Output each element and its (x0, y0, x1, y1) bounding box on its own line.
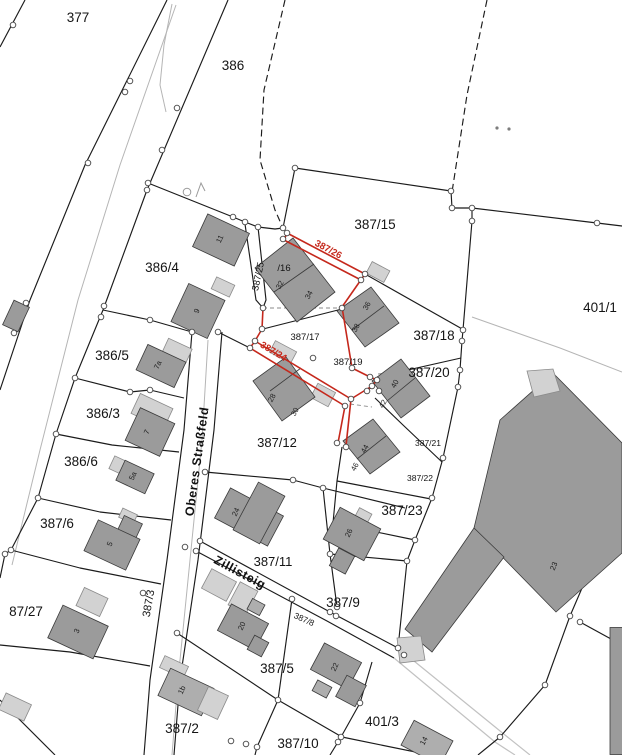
boundary-vertex-marker (255, 224, 261, 230)
boundary-vertex-marker (395, 645, 401, 651)
parcel-label: 401/3 (365, 714, 399, 729)
boundary-vertex-marker (189, 329, 195, 335)
boundary-vertex-marker (122, 89, 128, 95)
boundary-vertex-marker (2, 551, 8, 557)
boundary-vertex-marker (567, 613, 573, 619)
boundary-vertex-marker (440, 455, 446, 461)
parcel-label: 387/18 (413, 328, 454, 343)
boundary-vertex-marker (327, 609, 333, 615)
boundary-vertex-marker (259, 326, 265, 332)
boundary-vertex-marker (292, 165, 298, 171)
boundary-vertex-marker (362, 271, 368, 277)
boundary-vertex-marker (376, 388, 382, 394)
boundary-vertex-marker (335, 739, 341, 745)
boundary-vertex-marker (448, 188, 454, 194)
boundary-vertex-marker (374, 377, 380, 383)
boundary-vertex-marker (348, 396, 354, 402)
boundary-vertex-marker (284, 230, 290, 236)
boundary-vertex-marker (594, 220, 600, 226)
parcel-label: 401/1 (583, 300, 617, 315)
point-symbol (495, 126, 498, 129)
cadastral-map-view: 377386386/4386/5386/3386/6387/687/27387/… (0, 0, 622, 755)
boundary-vertex-marker (247, 345, 253, 351)
boundary-vertex-marker (174, 630, 180, 636)
parcel-label: 386 (222, 58, 245, 73)
boundary-vertex-marker (280, 225, 286, 231)
boundary-vertex-marker (401, 652, 407, 658)
boundary-vertex-marker (202, 469, 208, 475)
boundary-vertex-marker (412, 537, 418, 543)
parcel-label: 387/6 (40, 516, 74, 531)
boundary-vertex-marker (147, 317, 153, 323)
boundary-vertex-marker (459, 338, 465, 344)
boundary-vertex-marker (127, 389, 133, 395)
boundary-vertex-marker (358, 277, 364, 283)
parcel-label: 87/27 (9, 604, 43, 619)
boundary-vertex-marker (11, 330, 17, 336)
parcel-label: 387/9 (326, 595, 360, 610)
boundary-vertex-marker (469, 218, 475, 224)
boundary-vertex-marker (343, 444, 349, 450)
boundary-vertex-marker (101, 303, 107, 309)
boundary-vertex-marker (280, 236, 286, 242)
parcel-label: 386/4 (145, 260, 179, 275)
boundary-vertex-marker (23, 300, 29, 306)
parcel-label: 387/10 (277, 736, 318, 751)
boundary-vertex-marker (147, 387, 153, 393)
parcel-label: 387/11 (254, 554, 293, 569)
boundary-vertex-marker (577, 619, 583, 625)
boundary-vertex-marker (53, 431, 59, 437)
boundary-vertex-marker (252, 338, 258, 344)
parcel-label: 387/2 (165, 721, 199, 736)
boundary-vertex-marker (242, 219, 248, 225)
boundary-vertex-marker (145, 180, 151, 186)
parcel-label: 387/17 (290, 332, 319, 343)
boundary-vertex-marker (342, 403, 348, 409)
boundary-vertex-marker (457, 367, 463, 373)
boundary-vertex-marker (174, 105, 180, 111)
parcel-label: 387/15 (354, 217, 395, 232)
parcel-label: 387/19 (333, 357, 362, 368)
boundary-vertex-marker (260, 305, 266, 311)
boundary-vertex-marker (230, 214, 236, 220)
boundary-vertex-marker (449, 205, 455, 211)
boundary-vertex-marker (339, 305, 345, 311)
parcel-label: 377 (67, 10, 90, 25)
boundary-vertex-marker (290, 477, 296, 483)
parcel-label: 386/3 (86, 406, 120, 421)
boundary-vertex-marker (542, 682, 548, 688)
boundary-vertex-marker (369, 383, 375, 389)
parcel-label: /16 (277, 263, 290, 274)
boundary-vertex-marker (159, 147, 165, 153)
boundary-vertex-marker (215, 329, 221, 335)
boundary-vertex-marker (455, 384, 461, 390)
boundary-vertex-marker (469, 205, 475, 211)
parcel-label: 387/20 (408, 365, 449, 380)
parcel-label: 386/6 (64, 454, 98, 469)
boundary-vertex-marker (333, 613, 339, 619)
boundary-vertex-marker (228, 738, 234, 744)
boundary-vertex-marker (182, 544, 188, 550)
parcel-label: 386/5 (95, 348, 129, 363)
boundary-vertex-marker (497, 734, 503, 740)
cadastral-map: 377386386/4386/5386/3386/6387/687/27387/… (0, 0, 622, 755)
boundary-vertex-marker (320, 485, 326, 491)
boundary-vertex-marker (289, 596, 295, 602)
boundary-vertex-marker (72, 375, 78, 381)
parcel-label: 387/21 (415, 438, 441, 448)
boundary-vertex-marker (367, 374, 373, 380)
boundary-vertex-marker (10, 22, 16, 28)
parcel-label: 387/5 (260, 661, 294, 676)
point-symbol (507, 127, 510, 130)
boundary-vertex-marker (429, 495, 435, 501)
building (397, 636, 425, 663)
parcel-label: 387/12 (257, 435, 297, 450)
boundary-vertex-marker (127, 78, 133, 84)
boundary-vertex-marker (144, 187, 150, 193)
parcel-label: 387/23 (381, 503, 422, 518)
boundary-vertex-marker (35, 495, 41, 501)
boundary-vertex-marker (334, 440, 340, 446)
boundary-vertex-marker (85, 160, 91, 166)
boundary-vertex-marker (243, 741, 249, 747)
boundary-vertex-marker (98, 314, 104, 320)
building (610, 628, 622, 755)
boundary-vertex-marker (254, 744, 260, 750)
boundary-vertex-marker (193, 548, 199, 554)
boundary-vertex-marker (404, 558, 410, 564)
boundary-vertex-marker (327, 551, 333, 557)
boundary-vertex-marker (275, 697, 281, 703)
boundary-vertex-marker (364, 388, 370, 394)
boundary-vertex-marker (310, 355, 316, 361)
parcel-label: 387/22 (407, 473, 433, 483)
boundary-vertex-marker (357, 700, 363, 706)
boundary-vertex-marker (197, 538, 203, 544)
boundary-vertex-marker (8, 547, 14, 553)
boundary-vertex-marker (460, 327, 466, 333)
